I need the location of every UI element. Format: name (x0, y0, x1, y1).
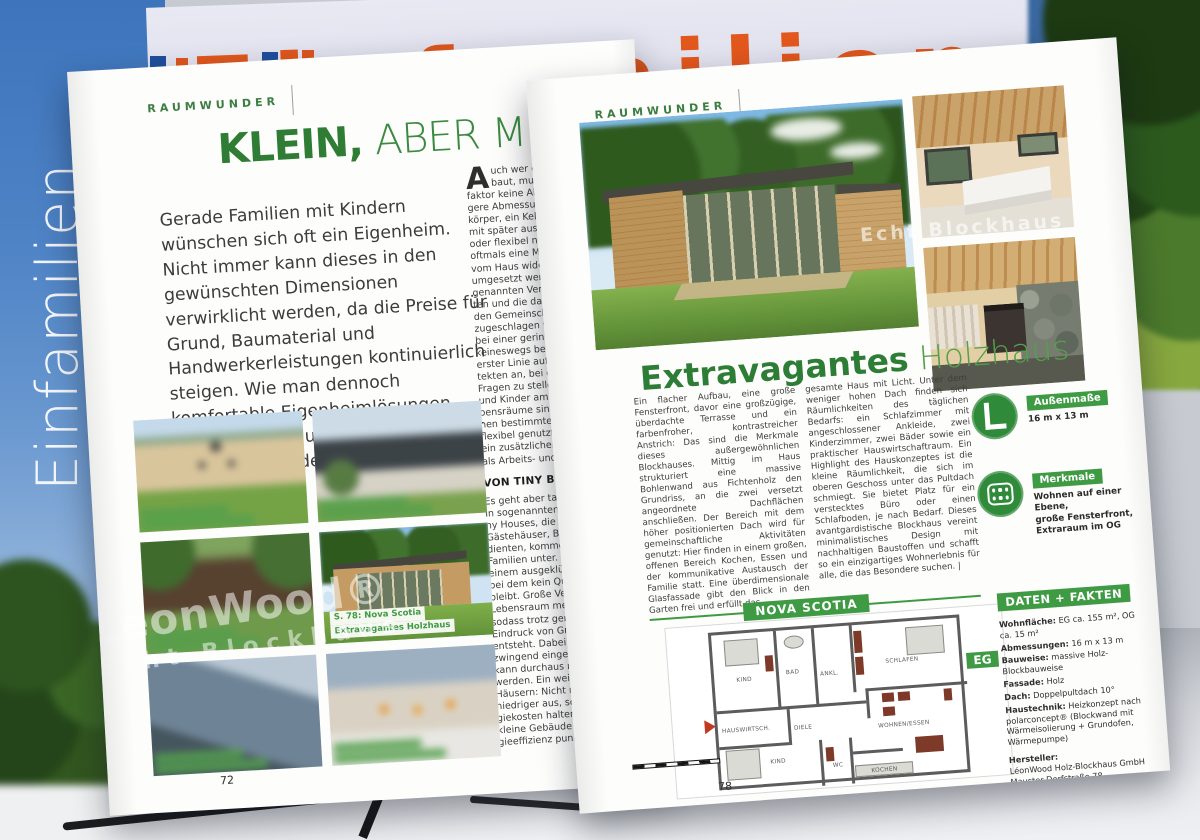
floor-label-chip: EG (966, 651, 999, 669)
photo-wood-wall (835, 189, 907, 274)
header-rule (291, 85, 294, 115)
page-number: 78 (718, 779, 733, 793)
room-label: KIND (736, 677, 752, 684)
article-body: Ein flacher Aufbau, eine große Fensterfr… (633, 373, 982, 617)
features-badge: Merkmale Wohnen auf einer Ebene, große F… (976, 461, 1146, 543)
plan-furniture-bathtub (783, 635, 804, 649)
right-page: RAUMWUNDER (526, 37, 1170, 813)
entrance-arrow (704, 720, 716, 735)
floor-plan-drawing: KIND BAD ANKL. SCHLAFEN HAUSWIRTSCH. DIE… (708, 614, 971, 790)
headline-bold: KLEIN, (216, 117, 364, 173)
room-label: KIND (770, 758, 786, 765)
room-label: WOHNEN/ESSEN (878, 720, 930, 730)
gallery-photo (147, 655, 322, 777)
dropcap: A (465, 166, 490, 193)
plan-furniture-bed (725, 748, 761, 780)
blurred-caption (154, 748, 267, 774)
blurred-caption (319, 494, 432, 520)
fact-row: Haustechnik: Heizkonzept nach polarconce… (1005, 694, 1156, 748)
badge-label: Außenmaße (1026, 390, 1108, 411)
room-label: WC (833, 762, 844, 769)
room-label: DIELE (794, 724, 813, 731)
photo-window (924, 146, 973, 185)
room-label: BAD (786, 669, 800, 676)
floor-plan: EG (664, 603, 1014, 799)
blurred-caption (147, 626, 260, 652)
badge-text: Wohnen auf einer Ebene, große Fensterfro… (1033, 485, 1145, 539)
fact-value: Holz (1046, 675, 1064, 686)
plan-furniture (765, 655, 774, 672)
fact-label: Dach: (1004, 690, 1031, 702)
plan-furniture-dining-table (915, 735, 944, 753)
room-label: HAUSWIRTSCH. (722, 726, 771, 736)
house-photo-gallery: S. 78: Nova Scotia Extravagantes Holzhau… (133, 401, 501, 776)
photo-glass-front (683, 184, 841, 283)
plan-furniture (855, 657, 864, 676)
plan-furniture-sofa (883, 706, 896, 716)
magazine-spread-photo: Einfamilien Einfamilien Häuser|2026 RAUM… (0, 0, 1200, 840)
plan-furniture-sofa (882, 692, 895, 702)
dimensions-badge: Außenmaße 16 m x 13 m (970, 383, 1138, 441)
plan-furniture-sofa (898, 691, 911, 701)
photo-window (1017, 132, 1059, 157)
gallery-photo (312, 401, 487, 523)
main-house-photo (579, 99, 919, 350)
section-label: RAUMWUNDER (147, 94, 279, 115)
dimensions-icon (970, 392, 1019, 441)
room-label: SCHLAFEN (885, 656, 919, 664)
interior-photo-kitchen (912, 85, 1074, 238)
body-column-1: Ein flacher Aufbau, eine große Fensterfr… (633, 386, 811, 617)
plan-furniture-bed (723, 638, 759, 666)
gallery-photo (326, 644, 501, 766)
section-header: RAUMWUNDER (146, 85, 293, 123)
badge-label: Merkmale (1032, 469, 1103, 489)
photo-wood-wall (609, 190, 689, 292)
page-number: 72 (220, 774, 235, 788)
plan-furniture (853, 631, 863, 654)
room-label: ANKL. (820, 670, 839, 677)
plan-furniture (826, 747, 835, 762)
facts-heading: DATEN + FAKTEN (997, 584, 1131, 612)
photo-glass-front (355, 569, 443, 610)
body-column-2: gesamte Haus mit Licht. Unter dem wenige… (805, 373, 983, 604)
fact-value: 16 m x 13 m (1071, 634, 1124, 648)
blurred-caption (140, 504, 253, 530)
plan-furniture (944, 688, 953, 701)
fact-label: Fassade: (1003, 676, 1044, 689)
blurred-caption (333, 737, 446, 763)
plan-furniture-bed (905, 625, 945, 656)
gallery-photo (133, 411, 308, 533)
gallery-photo (140, 533, 315, 655)
gallery-photo-nova-scotia: S. 78: Nova Scotia Extravagantes Holzhau… (319, 522, 494, 644)
badge-text: 16 m x 13 m (1028, 409, 1110, 426)
features-icon (976, 469, 1025, 518)
